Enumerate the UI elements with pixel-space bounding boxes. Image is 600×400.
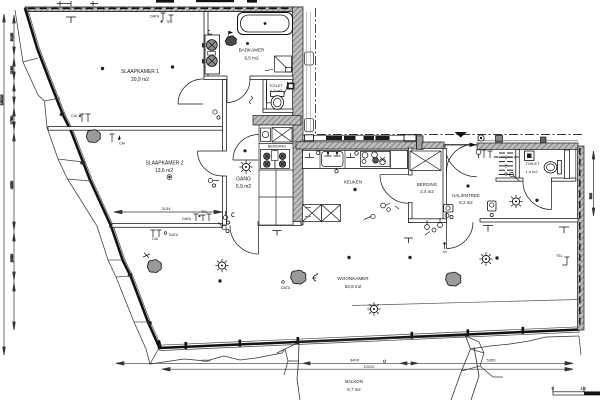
svg-text:SLAAPKAMER 2: SLAAPKAMER 2 (145, 161, 183, 167)
svg-text:HAL/ENTREE: HAL/ENTREE (452, 193, 480, 198)
svg-text:1,2 m2: 1,2 m2 (270, 88, 283, 93)
svg-text:63,6 m2: 63,6 m2 (345, 284, 362, 289)
svg-text:GANG: GANG (236, 177, 251, 183)
svg-text:WOONKAMER: WOONKAMER (337, 276, 369, 281)
svg-text:3134: 3134 (162, 206, 172, 211)
svg-text:4250: 4250 (10, 181, 14, 189)
svg-text:1m: 1m (442, 250, 447, 254)
svg-text:DATA: DATA (182, 217, 192, 221)
svg-text:BERGING: BERGING (417, 182, 438, 187)
svg-text:8,2 m2: 8,2 m2 (459, 200, 473, 205)
svg-text:9019: 9019 (202, 358, 212, 363)
svg-text:BERGING: BERGING (268, 144, 286, 149)
svg-text:13110: 13110 (0, 94, 4, 106)
svg-text:500: 500 (589, 193, 593, 199)
svg-text:5350: 5350 (487, 358, 497, 363)
svg-text:13,6 m2: 13,6 m2 (155, 168, 173, 174)
svg-text:CAI: CAI (119, 142, 125, 146)
svg-text:DATA: DATA (281, 286, 291, 290)
svg-text:BADKAMER: BADKAMER (239, 48, 265, 53)
svg-text:1180: 1180 (10, 66, 14, 74)
svg-text:DATA: DATA (169, 233, 179, 237)
svg-text:2080: 2080 (10, 254, 14, 262)
svg-text:1,4 m2: 1,4 m2 (525, 169, 538, 174)
svg-text:TEL: TEL (556, 254, 563, 258)
svg-text:KEUKEN: KEUKEN (344, 180, 362, 185)
svg-text:3130: 3130 (10, 33, 14, 41)
svg-text:CAI: CAI (152, 237, 158, 241)
svg-text:10220: 10220 (363, 364, 375, 369)
svg-text:BALKON: BALKON (345, 379, 363, 384)
svg-text:6,5 m2: 6,5 m2 (244, 56, 258, 61)
svg-text:DATA: DATA (150, 15, 160, 19)
svg-text:TOILET: TOILET (526, 161, 540, 166)
svg-text:20,9 m2: 20,9 m2 (131, 77, 149, 83)
svg-text:1m: 1m (580, 386, 587, 391)
svg-text:SLAAPKAMER 1: SLAAPKAMER 1 (121, 69, 159, 75)
svg-text:3400: 3400 (350, 358, 360, 363)
svg-text:TEL: TEL (166, 20, 173, 24)
svg-text:TEL: TEL (201, 210, 208, 214)
svg-text:9,7 m2: 9,7 m2 (347, 387, 361, 392)
svg-text:2,4 m2: 2,4 m2 (420, 189, 434, 194)
svg-text:CAI: CAI (71, 114, 77, 118)
svg-text:1780: 1780 (10, 116, 14, 124)
svg-text:5,9 m2: 5,9 m2 (236, 184, 252, 190)
